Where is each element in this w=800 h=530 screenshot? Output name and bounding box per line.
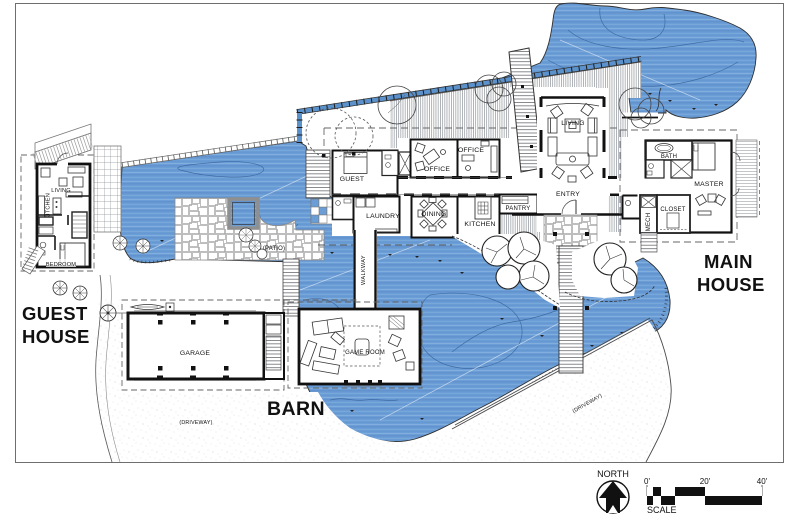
svg-text:LAUNDRY: LAUNDRY (366, 213, 400, 220)
svg-text:40': 40' (757, 477, 768, 486)
svg-text:PANTRY: PANTRY (506, 206, 531, 212)
svg-text:HOUSE: HOUSE (22, 326, 90, 347)
svg-text:(DRIVEWAY): (DRIVEWAY) (179, 420, 212, 426)
svg-text:MASTER: MASTER (694, 181, 724, 188)
svg-text:GUEST: GUEST (340, 176, 364, 183)
svg-text:KITCHEN: KITCHEN (464, 221, 495, 228)
svg-text:MAIN: MAIN (704, 251, 753, 272)
svg-text:0': 0' (644, 477, 650, 486)
svg-text:GUEST: GUEST (22, 303, 88, 324)
svg-text:HOUSE: HOUSE (697, 274, 765, 295)
svg-text:NORTH: NORTH (597, 469, 629, 479)
svg-text:LIVING: LIVING (51, 188, 71, 194)
svg-text:WALKWAY: WALKWAY (361, 255, 367, 285)
svg-text:20': 20' (700, 477, 711, 486)
svg-text:MECH: MECH (646, 213, 652, 231)
svg-text:OFFICE: OFFICE (424, 166, 450, 173)
svg-text:DINING: DINING (422, 211, 447, 218)
svg-text:ENTRY: ENTRY (556, 191, 580, 198)
svg-text:GARAGE: GARAGE (180, 350, 211, 357)
svg-text:BATH: BATH (661, 154, 677, 160)
svg-text:SCALE: SCALE (647, 505, 677, 515)
svg-text:OFFICE: OFFICE (458, 147, 484, 154)
svg-text:CLOSET: CLOSET (660, 207, 685, 213)
svg-text:BARN: BARN (267, 398, 325, 420)
svg-text:LIVING: LIVING (561, 120, 585, 127)
svg-text:BEDROOM: BEDROOM (46, 262, 76, 268)
